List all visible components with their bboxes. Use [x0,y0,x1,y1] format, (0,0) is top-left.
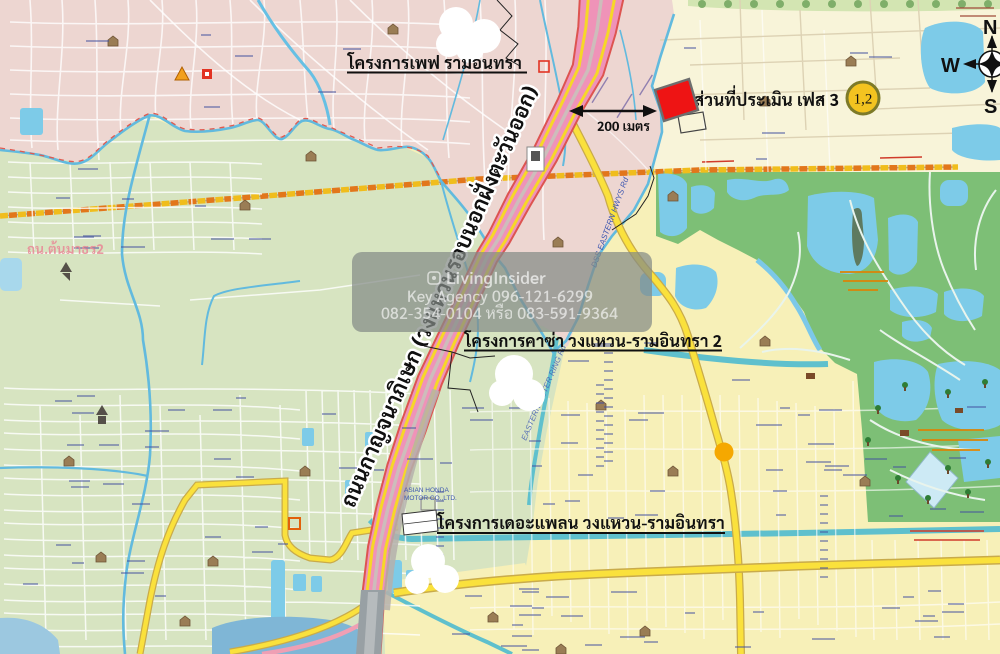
svg-text:S: S [984,96,997,118]
svg-text:N: N [983,17,997,39]
svg-text:1,2: 1,2 [854,92,873,108]
svg-text:W: W [941,55,960,77]
svg-text:MOTOR CO.,LTD.: MOTOR CO.,LTD. [404,495,457,502]
svg-text:ASIAN HONDA: ASIAN HONDA [404,487,449,494]
